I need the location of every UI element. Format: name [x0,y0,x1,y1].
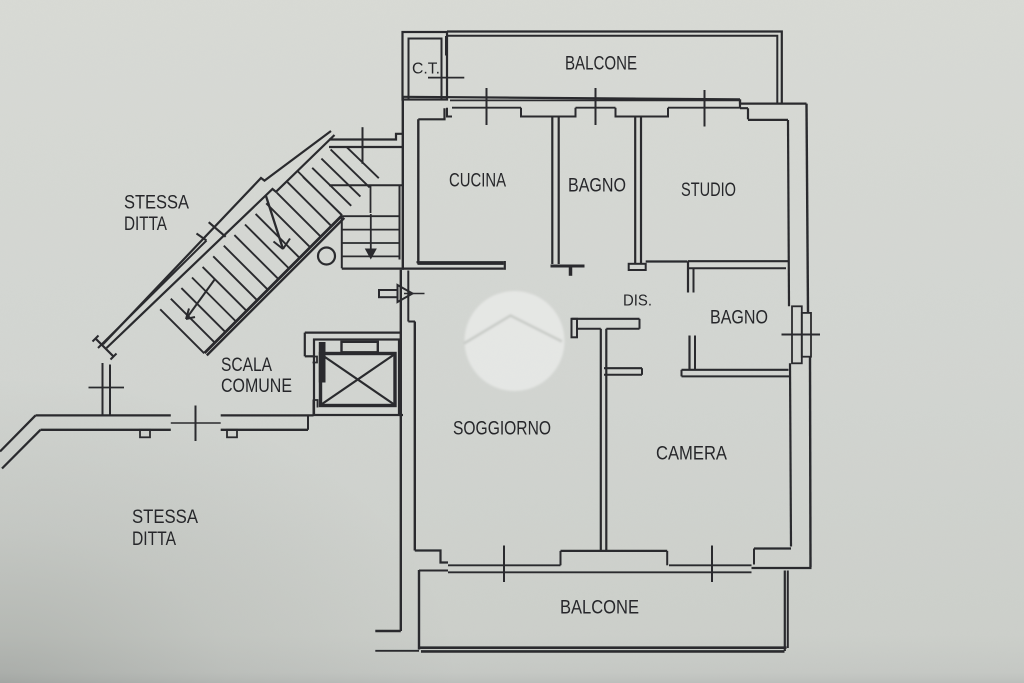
svg-text:BALCONE: BALCONE [560,598,639,619]
svg-text:DITTA: DITTA [132,529,176,550]
svg-text:BALCONE: BALCONE [565,54,637,75]
svg-text:C.T.: C.T. [412,61,440,78]
svg-text:STUDIO: STUDIO [681,180,736,201]
svg-text:CAMERA: CAMERA [656,444,727,465]
svg-text:CUCINA: CUCINA [449,171,506,192]
svg-text:SCALA: SCALA [221,355,272,376]
svg-text:BAGNO: BAGNO [710,308,768,329]
svg-text:SOGGIORNO: SOGGIORNO [453,419,551,440]
svg-text:DIS.: DIS. [623,293,652,310]
svg-text:BAGNO: BAGNO [568,176,626,197]
svg-text:STESSA: STESSA [124,193,189,214]
svg-text:STESSA: STESSA [132,507,198,528]
svg-text:DITTA: DITTA [124,214,167,235]
svg-text:COMUNE: COMUNE [221,376,292,397]
